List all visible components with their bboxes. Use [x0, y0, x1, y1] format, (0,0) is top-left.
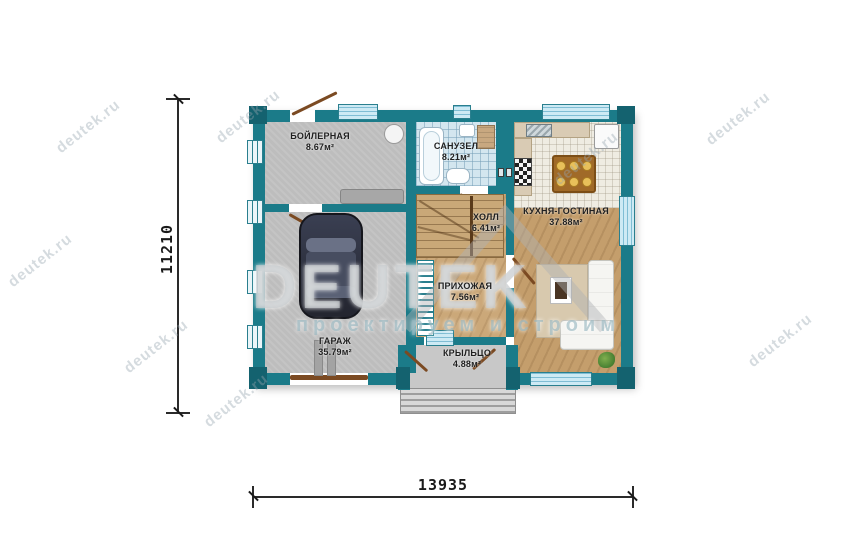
room-label-bathroom: САНУЗЕЛ 8.21м² — [414, 141, 498, 163]
chair-icon — [556, 161, 566, 171]
room-area: 35.79м² — [283, 347, 387, 358]
room-name: БОЙЛЕРНАЯ — [268, 131, 372, 142]
window-left-1 — [247, 140, 263, 164]
boiler-unit — [384, 124, 404, 144]
watermark-site: deutek.ru — [745, 310, 816, 371]
window-bottom-living — [530, 372, 592, 386]
room-name: САНУЗЕЛ — [414, 141, 498, 152]
room-area: 8.21м² — [414, 152, 498, 163]
wall-boiler-garage-left — [265, 204, 289, 212]
dimension-line-bottom — [253, 496, 633, 498]
dimension-line-left — [177, 98, 179, 414]
room-name: КРЫЛЬЦО — [421, 348, 513, 359]
chair-icon — [556, 177, 566, 187]
window-top-boiler — [338, 104, 378, 120]
car-windshield — [306, 238, 356, 252]
dimension-label-width: 13935 — [398, 476, 488, 494]
room-area: 6.41м² — [452, 223, 520, 234]
kitchen-sink — [526, 124, 552, 137]
room-name: ХОЛЛ — [452, 212, 520, 223]
chair-icon — [569, 177, 579, 187]
watermark-site: deutek.ru — [53, 96, 124, 157]
room-label-kitchen-living: КУХНЯ-ГОСТИНАЯ 37.88м² — [512, 206, 620, 228]
plant-icon — [598, 352, 615, 368]
wall-bathroom-bottom-right — [488, 186, 496, 194]
room-label-entry: ПРИХОЖАЯ 7.56м² — [421, 281, 509, 303]
watermark-tagline: проектируем и строим — [210, 314, 706, 337]
watermark-site: deutek.ru — [703, 88, 774, 149]
corner-top-left — [249, 106, 267, 124]
window-left-2 — [247, 200, 263, 224]
room-name: КУХНЯ-ГОСТИНАЯ — [512, 206, 620, 217]
bathroom-sink — [459, 124, 475, 137]
chair-icon — [569, 161, 579, 171]
stove — [514, 158, 532, 186]
room-area: 8.67м² — [268, 142, 372, 153]
corner-bottom-left — [249, 367, 267, 389]
room-label-porch: КРЫЛЬЦО 4.88м² — [421, 348, 513, 370]
wall-bathroom-bottom-left — [416, 186, 460, 194]
floor-plan-canvas: БОЙЛЕРНАЯ 8.67м² САНУЗЕЛ 8.21м² ХОЛЛ 6.4… — [0, 0, 860, 540]
window-top-kitchen — [542, 104, 610, 120]
window-top-bathroom — [453, 105, 471, 119]
wall-entry-porch-right — [454, 337, 506, 345]
dimension-label-height: 11210 — [158, 213, 176, 285]
room-area: 4.88м² — [421, 359, 513, 370]
toilet — [446, 168, 470, 184]
chair-icon — [582, 177, 592, 187]
porch-steps — [400, 388, 516, 414]
corner-porch-left — [396, 367, 410, 389]
room-label-garage: ГАРАЖ 35.79м² — [283, 336, 387, 358]
vent-shaft-1 — [498, 168, 504, 177]
room-area: 37.88м² — [512, 217, 620, 228]
wall-bottom-mid-segment — [368, 373, 398, 385]
fridge — [594, 124, 619, 149]
corner-top-right — [617, 106, 635, 124]
room-area: 7.56м² — [421, 292, 509, 303]
room-label-boiler: БОЙЛЕРНАЯ 8.67м² — [268, 131, 372, 153]
chair-icon — [582, 161, 592, 171]
watermark-site: deutek.ru — [5, 230, 76, 291]
watermark-site: deutek.ru — [121, 316, 192, 377]
wall-entry-porch-left — [416, 337, 424, 345]
vent-shaft-2 — [506, 168, 512, 177]
window-right-living — [619, 196, 635, 246]
room-name: ГАРАЖ — [283, 336, 387, 347]
wall-right — [621, 110, 633, 385]
room-name: ПРИХОЖАЯ — [421, 281, 509, 292]
room-label-hall: ХОЛЛ 6.41м² — [452, 212, 520, 234]
corner-porch-right — [506, 367, 520, 389]
corner-bottom-right — [617, 367, 635, 389]
